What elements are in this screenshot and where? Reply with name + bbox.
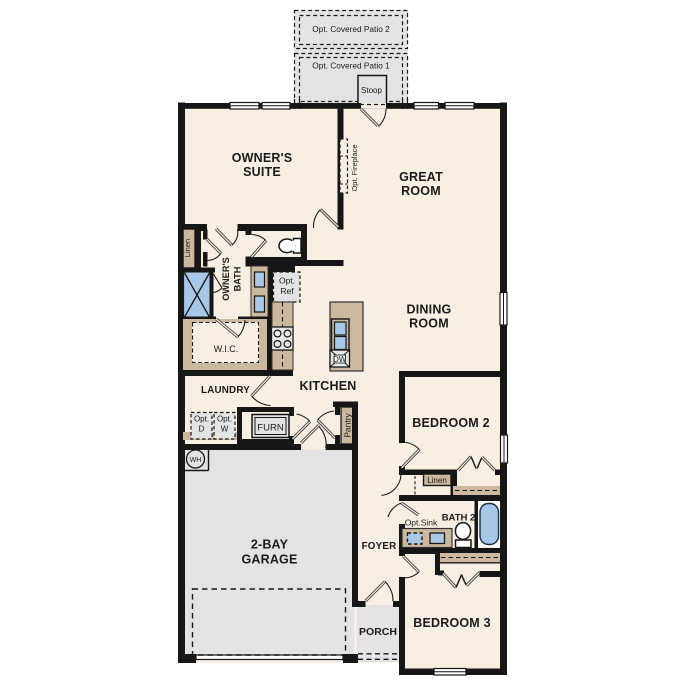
svg-text:Opt.Sink: Opt.Sink <box>405 518 438 528</box>
svg-text:Opt.: Opt. <box>194 415 209 424</box>
svg-text:DW: DW <box>333 355 347 364</box>
svg-text:GREAT: GREAT <box>399 170 443 184</box>
svg-text:WH: WH <box>190 457 202 464</box>
svg-text:LAUNDRY: LAUNDRY <box>201 385 250 396</box>
svg-text:D: D <box>199 425 205 434</box>
svg-text:Linen: Linen <box>183 239 192 257</box>
svg-text:Opt.: Opt. <box>279 276 295 286</box>
svg-text:W: W <box>221 425 229 434</box>
svg-text:Opt.: Opt. <box>217 415 232 424</box>
svg-text:Opt. Covered Patio 1: Opt. Covered Patio 1 <box>312 61 390 71</box>
svg-text:Stoop: Stoop <box>361 86 382 95</box>
svg-text:OWNER'S: OWNER'S <box>232 151 293 165</box>
svg-text:W.I.C.: W.I.C. <box>214 344 239 354</box>
svg-text:Opt. Fireplace: Opt. Fireplace <box>350 144 359 191</box>
svg-text:BEDROOM 2: BEDROOM 2 <box>412 416 490 430</box>
svg-text:Pantry: Pantry <box>343 412 353 437</box>
svg-text:Ref: Ref <box>280 286 294 296</box>
svg-text:BEDROOM 3: BEDROOM 3 <box>413 616 491 630</box>
svg-text:OWNER'S: OWNER'S <box>221 257 231 301</box>
svg-text:FOYER: FOYER <box>362 541 397 552</box>
svg-text:2-BAY: 2-BAY <box>251 538 289 552</box>
svg-text:BATH: BATH <box>233 266 243 291</box>
svg-text:DINING: DINING <box>407 303 452 317</box>
svg-text:GARAGE: GARAGE <box>241 553 297 567</box>
svg-text:Opt. Covered Patio 2: Opt. Covered Patio 2 <box>312 24 390 34</box>
svg-text:ROOM: ROOM <box>409 317 449 331</box>
svg-text:BATH 2: BATH 2 <box>442 513 476 524</box>
svg-text:SUITE: SUITE <box>243 165 281 179</box>
svg-text:FURN: FURN <box>257 423 284 434</box>
svg-text:ROOM: ROOM <box>401 184 441 198</box>
svg-text:KITCHEN: KITCHEN <box>300 379 357 393</box>
svg-text:PORCH: PORCH <box>359 626 397 638</box>
svg-text:Linen: Linen <box>427 476 447 485</box>
